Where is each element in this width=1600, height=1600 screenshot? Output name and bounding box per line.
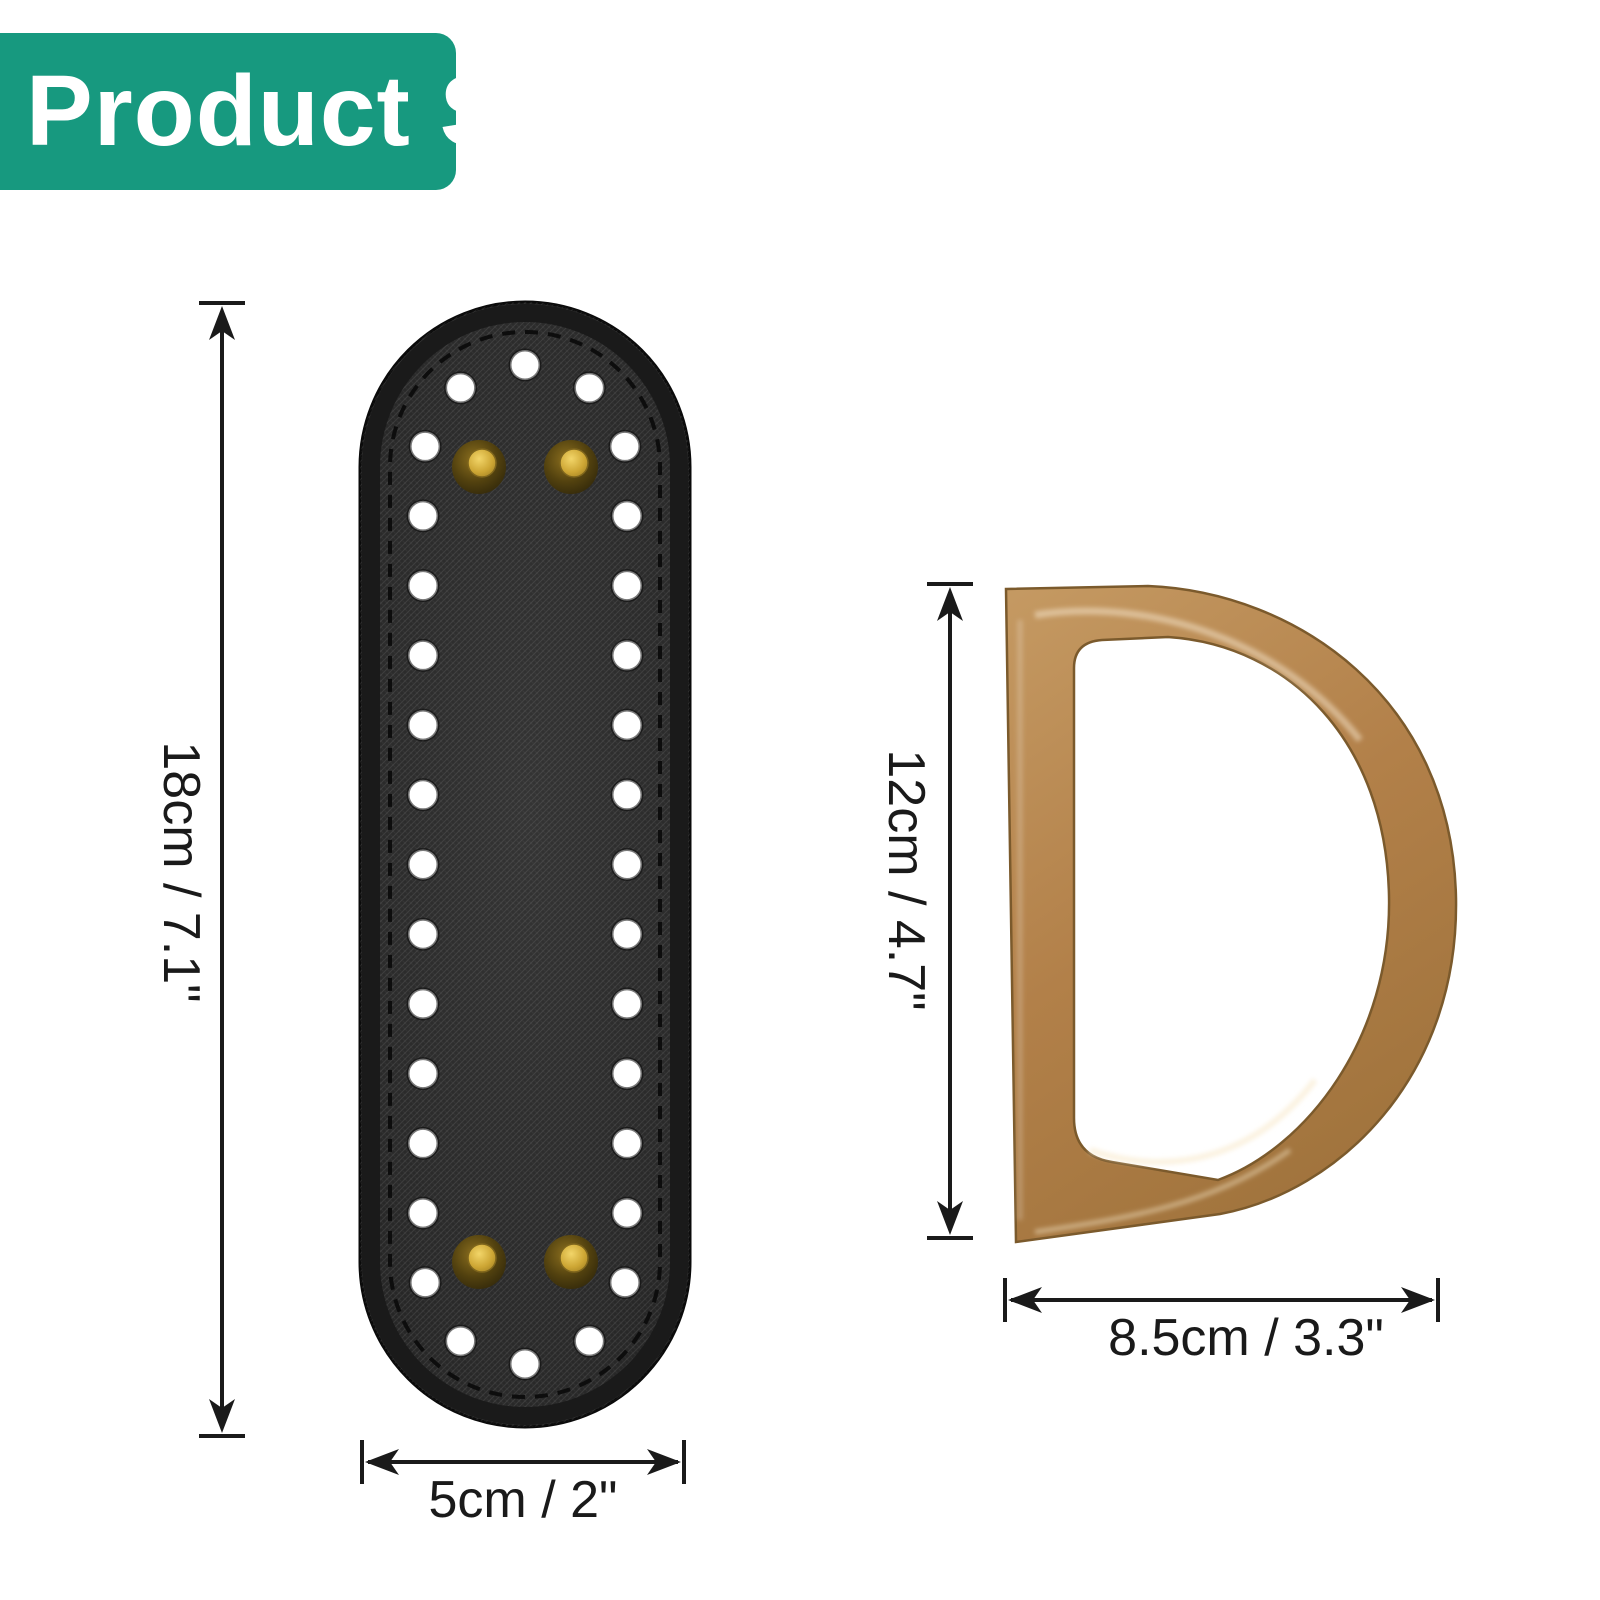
title-banner: Product Size <box>0 33 456 190</box>
d-handle-width-label: 8.5cm / 3.3" <box>1108 1312 1384 1364</box>
crochet-hole <box>408 501 438 531</box>
rivet <box>452 1235 506 1289</box>
crochet-hole <box>510 1349 540 1379</box>
crochet-hole <box>612 1128 642 1158</box>
crochet-hole <box>574 1326 604 1356</box>
crochet-hole <box>612 501 642 531</box>
bag-bottom-height-label: 18cm / 7.1" <box>155 741 207 1002</box>
crochet-hole <box>612 850 642 880</box>
crochet-hole <box>408 571 438 601</box>
crochet-hole <box>612 989 642 1019</box>
crochet-hole <box>408 780 438 810</box>
d-handle-height-label: 12cm / 4.7" <box>880 749 932 1010</box>
crochet-hole <box>408 989 438 1019</box>
crochet-hole <box>408 710 438 740</box>
crochet-hole <box>408 919 438 949</box>
crochet-hole <box>612 1198 642 1228</box>
page-title: Product Size <box>26 54 644 169</box>
crochet-hole <box>408 640 438 670</box>
crochet-hole <box>408 1198 438 1228</box>
rivet <box>544 440 598 494</box>
rivet <box>452 440 506 494</box>
crochet-hole <box>510 350 540 380</box>
crochet-hole <box>408 850 438 880</box>
crochet-hole <box>410 1268 440 1298</box>
crochet-hole <box>612 640 642 670</box>
crochet-hole <box>612 710 642 740</box>
d-handle-body <box>1006 586 1456 1242</box>
crochet-hole <box>408 1059 438 1089</box>
crochet-hole <box>612 571 642 601</box>
crochet-hole <box>410 431 440 461</box>
bag-bottom-insert <box>360 302 690 1427</box>
crochet-hole <box>574 373 604 403</box>
crochet-hole <box>612 1059 642 1089</box>
crochet-hole <box>612 919 642 949</box>
crochet-hole <box>610 431 640 461</box>
crochet-hole <box>408 1128 438 1158</box>
rivet <box>544 1235 598 1289</box>
d-ring-handle <box>1006 586 1456 1242</box>
crochet-hole <box>446 373 476 403</box>
crochet-hole <box>446 1326 476 1356</box>
bag-bottom-width-label: 5cm / 2" <box>429 1474 618 1526</box>
crochet-hole <box>612 780 642 810</box>
crochet-hole <box>610 1268 640 1298</box>
product-size-infographic: Product Size 18cm / 7.1" 5cm / 2" 12cm /… <box>0 0 1600 1600</box>
